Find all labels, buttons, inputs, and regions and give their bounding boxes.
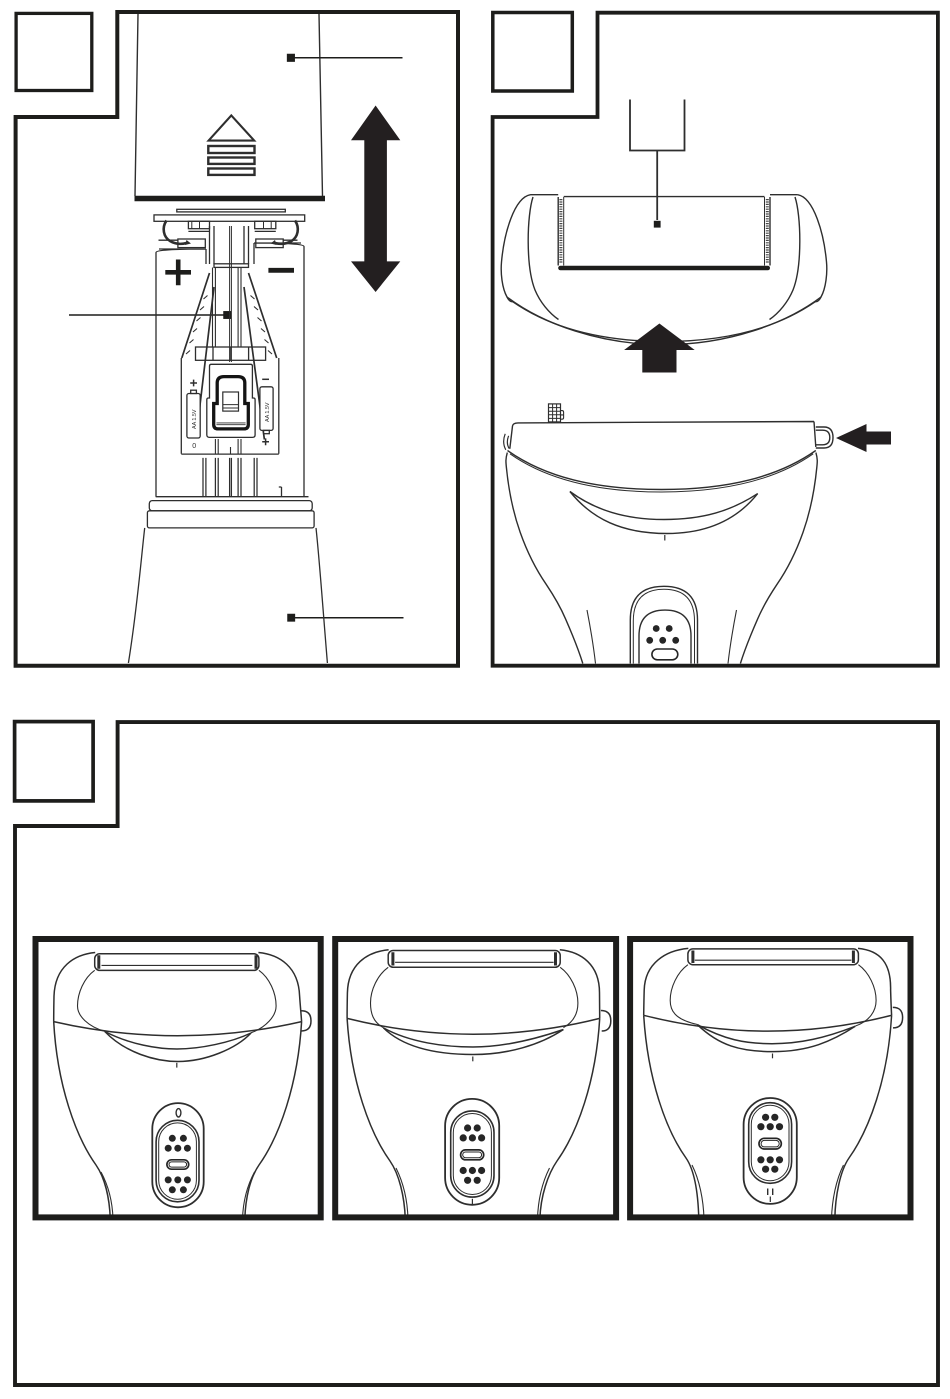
svg-text:AA 1.5V: AA 1.5V bbox=[192, 409, 198, 429]
svg-text:AA 1.5V: AA 1.5V bbox=[265, 402, 271, 422]
svg-text:0: 0 bbox=[192, 443, 196, 450]
